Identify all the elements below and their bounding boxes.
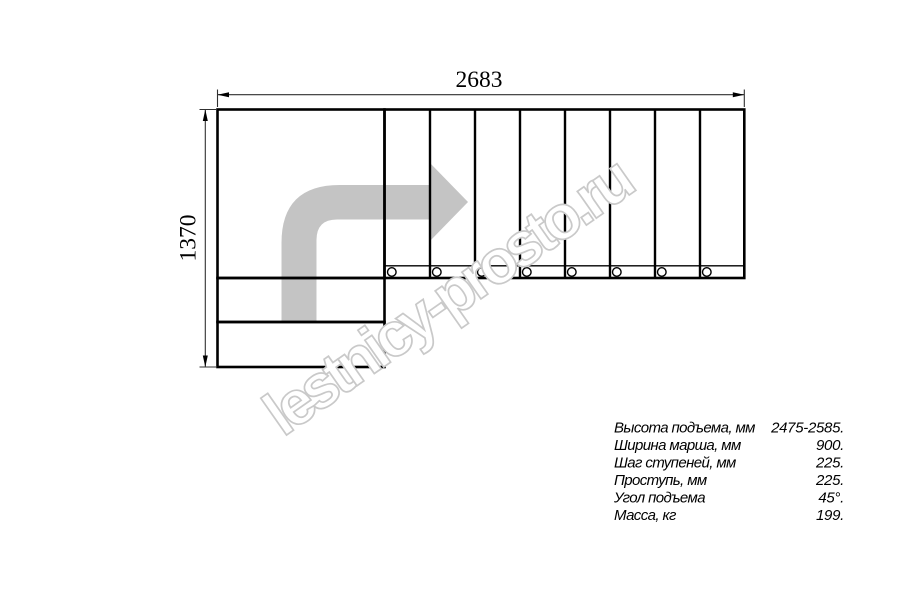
- svg-text:199.: 199.: [816, 507, 844, 524]
- svg-text:900.: 900.: [816, 437, 844, 454]
- svg-text:Шаг ступеней, мм: Шаг ступеней, мм: [614, 455, 736, 472]
- svg-text:Проступь, мм: Проступь, мм: [614, 472, 707, 489]
- svg-text:2683: 2683: [456, 67, 503, 93]
- svg-text:Масса, кг: Масса, кг: [614, 507, 677, 524]
- svg-text:225.: 225.: [815, 472, 844, 489]
- svg-text:Угол подъема: Угол подъема: [613, 490, 705, 507]
- svg-text:1370: 1370: [176, 215, 202, 262]
- svg-text:2475-2585.: 2475-2585.: [770, 420, 844, 437]
- svg-text:Высота подъема, мм: Высота подъема, мм: [614, 420, 755, 437]
- svg-text:225.: 225.: [815, 455, 844, 472]
- svg-text:Ширина марша, мм: Ширина марша, мм: [614, 437, 741, 454]
- svg-text:45°.: 45°.: [818, 490, 844, 507]
